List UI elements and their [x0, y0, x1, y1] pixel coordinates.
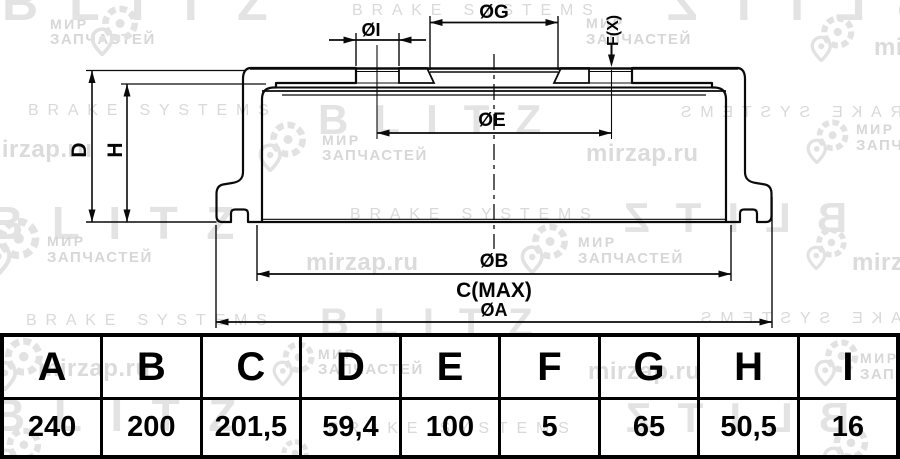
- dim-label-F: F(X): [605, 15, 622, 46]
- hub-flange-segment-left: [399, 68, 434, 83]
- table-value-C: 201,5: [201, 399, 301, 458]
- dim-label-G: ØG: [479, 2, 509, 23]
- table-value-row: 240 200 201,5 59,4 100 5 65 50,5 16: [2, 399, 898, 458]
- table-value-B: 200: [102, 399, 202, 458]
- dimension-labels: ØG ØI F(X) ØE D H ØB C(MAX) ØA: [68, 2, 622, 320]
- brake-drum-cross-section: ØG ØI F(X) ØE D H ØB C(MAX) ØA: [0, 0, 900, 333]
- dim-label-E: ØE: [478, 110, 505, 131]
- table-header-A: A: [2, 335, 102, 399]
- dim-label-B: ØB: [480, 251, 509, 272]
- dim-label-D: D: [68, 142, 91, 157]
- table-header-D: D: [301, 335, 401, 399]
- table-value-D: 59,4: [301, 399, 401, 458]
- table-value-E: 100: [400, 399, 500, 458]
- dim-label-C: C(MAX): [456, 279, 532, 302]
- table-header-B: B: [102, 335, 202, 399]
- table-header-row: A B C D E F G H I: [2, 335, 898, 399]
- table-value-A: 240: [2, 399, 102, 458]
- dimension-lines: [86, 16, 772, 328]
- table-value-I: 16: [798, 399, 898, 458]
- table-header-C: C: [201, 335, 301, 399]
- table-header-E: E: [400, 335, 500, 399]
- table-header-F: F: [500, 335, 600, 399]
- dim-label-H: H: [104, 142, 127, 157]
- table-value-G: 65: [599, 399, 699, 458]
- catalog-technical-drawing: BLITZ BLITZ BRAKE SYSTEMS МИР ЗАПЧАСТЕЙ …: [0, 0, 900, 459]
- dim-label-I: ØI: [361, 20, 380, 40]
- hub-flange-segment-right: [554, 68, 589, 83]
- drum-profile-lines: [86, 45, 738, 249]
- table-value-F: 5: [500, 399, 600, 458]
- table-header-I: I: [798, 335, 898, 399]
- table-value-H: 50,5: [699, 399, 799, 458]
- table-header-G: G: [599, 335, 699, 399]
- dim-label-A: ØA: [481, 300, 508, 320]
- dimension-table: A B C D E F G H I 240 200 201,5 59,4 100…: [0, 333, 900, 459]
- table-header-H: H: [699, 335, 799, 399]
